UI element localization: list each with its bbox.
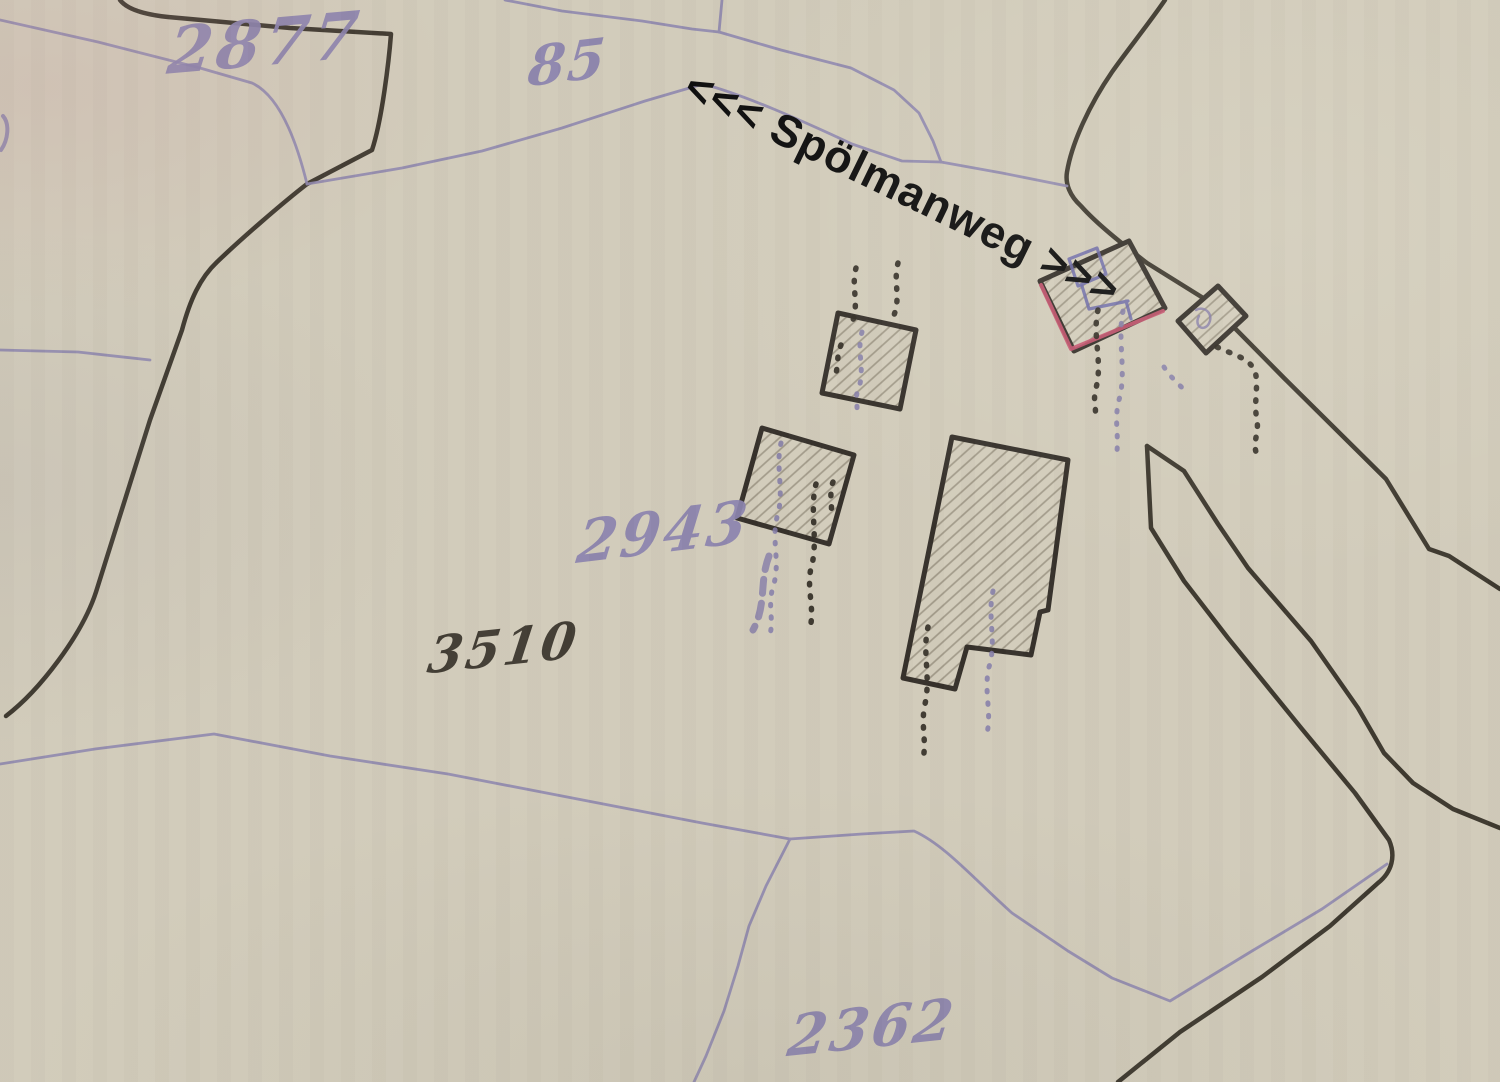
trail-purple-3-bold (753, 556, 769, 630)
boundary-black-wedge-right (1147, 446, 1500, 828)
road-edge-merged (941, 162, 1067, 186)
map-drawing (0, 0, 1500, 1082)
parcel-label-85: 85 (525, 25, 609, 100)
trail-black-7 (1217, 347, 1257, 452)
building-lower-middle (737, 428, 854, 544)
map-scan: 2877 85 2943 3510 2362 <<< Spölmanweg >>… (0, 0, 1500, 1082)
building-upper-middle (822, 313, 916, 409)
boundary-black-wedge-left (1118, 446, 1392, 1082)
partial-parcel-number-fragment (1, 116, 7, 150)
trail-purple-6 (1164, 367, 1185, 391)
trail-black-2 (894, 263, 898, 315)
boundary-purple-bottom-branch (694, 839, 790, 1082)
building-small-right (1178, 286, 1246, 353)
boundary-purple-left-horizontal (0, 350, 150, 360)
boundary-purple-top-stub (719, 0, 722, 32)
trail-black-1 (853, 268, 856, 320)
boundary-black-left (6, 184, 307, 716)
boundary-purple-bottom-long (0, 734, 1387, 1001)
boundary-purple-top-diagonal (505, 0, 719, 32)
